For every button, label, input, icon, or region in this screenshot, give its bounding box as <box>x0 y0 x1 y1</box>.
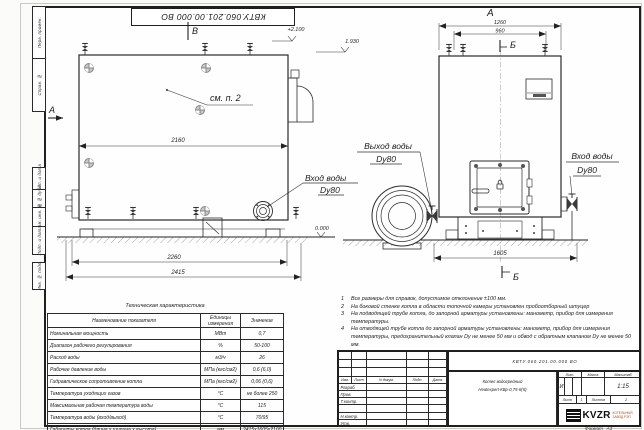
format-note: Формат А3 <box>585 426 612 430</box>
staff-cell <box>429 420 447 427</box>
inlet-label-left-line1: Вход воды <box>305 173 347 183</box>
sheet-label: Лист <box>557 396 577 404</box>
staff-cell <box>407 391 429 398</box>
staff-cell <box>407 413 429 420</box>
handhole-icon <box>202 64 211 73</box>
product-name-line2: Heatexpert-КВр-0,75-К(К) <box>449 386 556 394</box>
row-nkontr: Н.контр. <box>339 413 367 420</box>
revision-cell <box>352 360 367 368</box>
valve-icon <box>202 44 208 56</box>
tech-unit: МПа (кгс/см2) <box>201 376 241 388</box>
staff-cell <box>367 405 407 413</box>
lock-icon <box>497 180 503 189</box>
tech-row: Расход водым3/ч26 <box>48 352 284 364</box>
staff-cell <box>407 420 429 427</box>
col-data: Дата <box>429 377 447 384</box>
lit-cell-3 <box>573 378 582 396</box>
tech-unit: м3/ч <box>201 352 241 364</box>
tech-param: Габариты котла (длина х ширина х высота) <box>48 424 201 430</box>
tech-row: Температура воды (вход/выход)°С70/95 <box>48 412 284 424</box>
mass-value <box>582 378 605 396</box>
tech-unit: °С <box>201 412 241 424</box>
staff-cell <box>407 398 429 405</box>
firebox-door <box>470 161 532 214</box>
dim-2415: 2415 <box>170 270 185 276</box>
inlet-valve-icon <box>567 194 577 211</box>
product-name: Котел водогрейный Heatexpert-КВр-0,75-К(… <box>447 372 557 427</box>
tech-unit: °С <box>201 400 241 412</box>
tech-row: Температура уходящих газов°Сне более 250 <box>48 388 284 400</box>
product-name-line1: Котел водогрейный <box>449 378 556 386</box>
tech-param: Номинальная мощность <box>48 328 201 340</box>
dim-2160: 2160 <box>170 138 185 144</box>
valve-icon <box>542 45 548 57</box>
col-ndocum: N докум. <box>367 377 407 384</box>
tech-unit: % <box>201 340 241 352</box>
tech-value: 26 <box>241 352 284 364</box>
tech-unit: МВт <box>201 328 241 340</box>
col-izm: Изм. <box>339 377 352 384</box>
valve-icon <box>293 208 299 220</box>
front-view <box>439 45 577 263</box>
tech-value: 2415х1605х2100 <box>241 424 284 430</box>
tech-characteristics: Техническая характеристика Наименование … <box>47 303 283 430</box>
inlet-label-right-line1: Вход воды <box>571 151 613 161</box>
tech-value: 0,6 (6,0) <box>241 364 284 376</box>
tech-row: Габариты котла (длина х ширина х высота)… <box>48 424 284 430</box>
tech-param: Расход воды <box>48 352 201 364</box>
note-item: 3На подводящей трубе котла, до запорной … <box>339 311 636 326</box>
notes-list: 1Все размеры для справок, допустимое отк… <box>339 296 636 349</box>
staff-cell <box>407 384 429 391</box>
revision-cell <box>339 360 352 368</box>
elevation-0000: 0.000 <box>315 226 330 232</box>
staff-cell <box>429 413 447 420</box>
revision-cell <box>367 352 407 360</box>
tech-param: Диапазон рабочего регулирования <box>48 340 201 352</box>
brand-cell: KVZR КОТЕЛЬНЫЙ ЗАВОД РЭП <box>557 404 641 427</box>
valve-icon <box>446 45 452 57</box>
lit-cell-2 <box>565 378 573 396</box>
elevation-2100: +2.100 <box>288 27 306 33</box>
drawing-sheet: Перв. примен. Справ. № Подп. и дата Инв.… <box>0 0 644 430</box>
revision-cell <box>352 352 367 360</box>
tech-table: Наименование показателя Единицы измерени… <box>47 313 284 430</box>
tech-unit: мм <box>201 424 241 430</box>
section-marker-v: В <box>192 26 198 36</box>
lit-value: И <box>557 378 565 396</box>
row-tkontr: Т.контр. <box>339 398 367 405</box>
staff-cell <box>407 405 429 413</box>
staff-cell <box>367 420 407 427</box>
tech-row: Рабочее давление водыМПа (кгс/см2)0,6 (6… <box>48 364 284 376</box>
brand-name: KVZR <box>582 410 610 421</box>
section-marker-b-bottom: Б <box>513 272 519 282</box>
revision-cell <box>339 368 352 377</box>
revision-cell <box>407 360 429 368</box>
tech-col-name: Наименование показателя <box>48 314 201 328</box>
revision-cell <box>429 360 447 368</box>
tech-row: Гидравлическое сопротивление котлаМПа (к… <box>48 376 284 388</box>
note-number: 3 <box>339 311 351 326</box>
dim-2260: 2260 <box>166 255 181 261</box>
section-marker-b-top: Б <box>510 40 516 50</box>
doc-number: КВТУ.060.201.00.000 ВО <box>447 352 641 372</box>
elevation-1930: 1.930 <box>345 39 360 45</box>
tech-table-title: Техническая характеристика <box>47 303 283 313</box>
note-text: На подводящей трубе котла, до запорной а… <box>351 311 636 326</box>
dim-1605: 1605 <box>493 251 507 257</box>
staff-cell <box>429 391 447 398</box>
staff-cell <box>429 384 447 391</box>
inlet-flange <box>254 202 273 221</box>
tech-unit: МПа (кгс/см2) <box>201 364 241 376</box>
inlet-label-right-line2: Dy80 <box>577 165 597 175</box>
handhole-icon <box>85 64 94 73</box>
handhole-icon <box>201 207 210 216</box>
row-razrab: Разраб. <box>339 384 367 391</box>
tech-col-units: Единицы измерения <box>201 314 241 328</box>
tech-row: Максимальная рабочая температура воды°С1… <box>48 400 284 412</box>
tech-row: Номинальная мощностьМВт0,7 <box>48 328 284 340</box>
row-empty <box>339 405 367 413</box>
staff-cell <box>367 398 407 405</box>
scale-value: 1:15 <box>605 378 641 396</box>
note-item: 4На отводящей трубе котла до запорной ар… <box>339 326 636 349</box>
note-number: 4 <box>339 326 351 349</box>
kvzr-logo-icon <box>567 410 580 421</box>
col-podp: Подп. <box>407 377 429 384</box>
side-view <box>66 44 313 238</box>
valve-icon <box>82 44 88 56</box>
see-item-note: см. п. 2 <box>210 93 241 103</box>
brand-subtitle: КОТЕЛЬНЫЙ ЗАВОД РЭП <box>613 412 633 419</box>
tech-value: 115 <box>241 400 284 412</box>
sheets-value: 2 <box>611 396 641 404</box>
tech-unit: °С <box>201 388 241 400</box>
revision-cell <box>339 352 352 360</box>
valve-icon <box>247 44 253 56</box>
tech-table-header-row: Наименование показателя Единицы измерени… <box>48 314 284 328</box>
handhole-icon <box>85 159 94 168</box>
dim-960: 960 <box>495 29 505 35</box>
valve-icon <box>85 208 91 220</box>
tech-col-value: Значение <box>241 314 284 328</box>
tech-param: Максимальная рабочая температура воды <box>48 400 201 412</box>
note-text: Все размеры для справок, допустимое откл… <box>351 296 636 304</box>
valve-icon <box>193 208 199 220</box>
revision-cell <box>429 352 447 360</box>
outlet-label-line1: Выход воды <box>364 141 413 151</box>
revision-cell <box>407 368 429 377</box>
row-prov: Пров. <box>339 391 367 398</box>
staff-cell <box>429 398 447 405</box>
revision-cell <box>429 368 447 377</box>
view-a-title: А <box>486 8 494 19</box>
tech-param: Температура уходящих газов <box>48 388 201 400</box>
staff-cell <box>367 413 407 420</box>
section-marker-a: А <box>48 105 55 115</box>
tech-value: 0,7 <box>241 328 284 340</box>
tech-param: Гидравлическое сопротивление котла <box>48 376 201 388</box>
sheets-label: Листов <box>587 396 611 404</box>
tech-value: не более 250 <box>241 388 284 400</box>
note-text: На отводящей трубе котла до запорной арм… <box>351 326 636 349</box>
note-item: 1Все размеры для справок, допустимое отк… <box>339 296 636 304</box>
revision-cell <box>407 352 429 360</box>
staff-cell <box>367 384 407 391</box>
handhole-icon <box>196 106 205 115</box>
tech-row: Диапазон рабочего регулирования%50-100 <box>48 340 284 352</box>
staff-cell <box>429 405 447 413</box>
tech-value: 50-100 <box>241 340 284 352</box>
brand-subtitle-line2: ЗАВОД РЭП <box>613 416 633 420</box>
revision-cell <box>352 368 367 377</box>
valve-icon <box>130 208 136 220</box>
row-utv: Утв. <box>339 420 367 427</box>
tech-param: Температура воды (вход/выход) <box>48 412 201 424</box>
format-label: Формат <box>585 426 603 430</box>
revision-cell <box>367 368 407 377</box>
outlet-label-line2: Dy80 <box>376 154 396 164</box>
revision-cell <box>367 360 407 368</box>
tech-param: Рабочее давление воды <box>48 364 201 376</box>
title-block: Изм. Лист N докум. Подп. Дата Разраб. Пр… <box>337 350 639 425</box>
note-number: 1 <box>339 296 351 304</box>
ground-hatching <box>57 237 588 246</box>
valve-icon <box>460 45 466 57</box>
col-list: Лист <box>352 377 367 384</box>
note-number: 2 <box>339 304 351 312</box>
format-value: А3 <box>607 426 613 430</box>
inlet-label-left-line2: Dy80 <box>320 185 340 195</box>
tech-value: 70/95 <box>241 412 284 424</box>
staff-cell <box>367 391 407 398</box>
sheet-value: 1 <box>577 396 587 404</box>
tech-value: 0,06 (0,6) <box>241 376 284 388</box>
dim-1260: 1260 <box>494 20 507 26</box>
